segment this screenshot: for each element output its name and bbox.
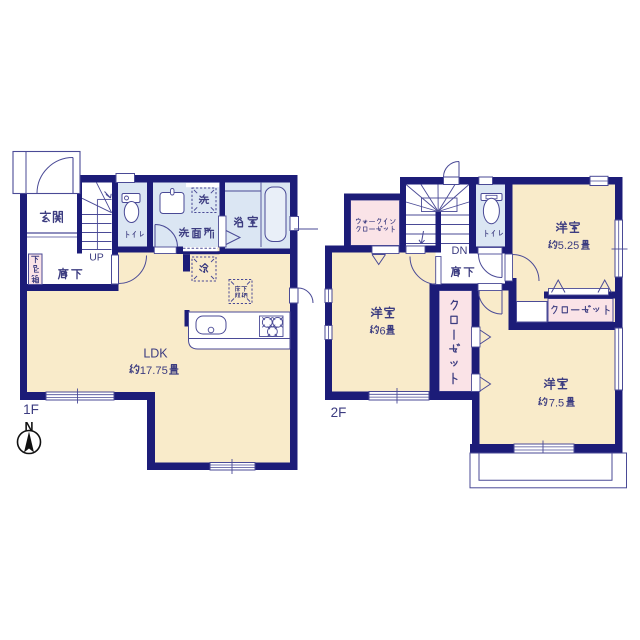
- svg-text:17.75: 17.75: [140, 365, 168, 377]
- svg-text:5.25: 5.25: [558, 240, 579, 252]
- svg-text:2F: 2F: [331, 405, 347, 420]
- svg-text:N: N: [24, 420, 33, 434]
- svg-text:6: 6: [379, 325, 385, 337]
- svg-text:7.5: 7.5: [549, 397, 564, 409]
- svg-text:1F: 1F: [23, 402, 39, 417]
- svg-text:UP: UP: [89, 252, 104, 264]
- svg-text:LDK: LDK: [143, 347, 168, 361]
- svg-text:DN: DN: [452, 245, 468, 257]
